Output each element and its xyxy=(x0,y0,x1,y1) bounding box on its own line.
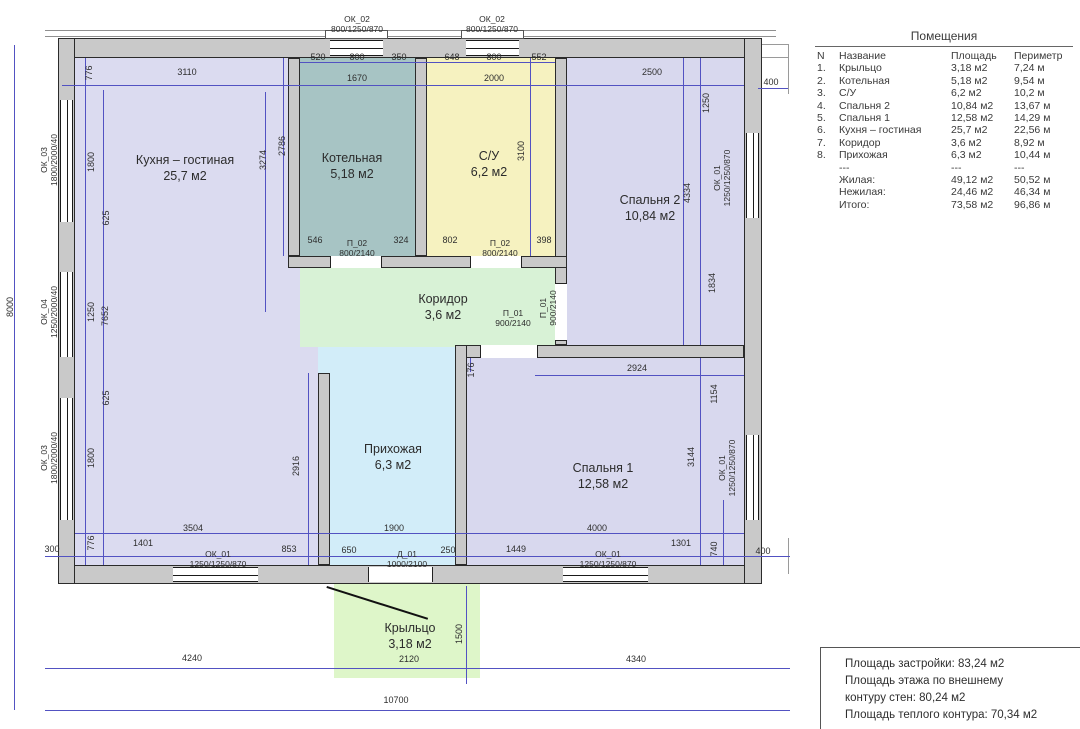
room-label: С/У6,2 м2 xyxy=(471,148,507,180)
opening-label: ОК_011250/1250/870 xyxy=(717,440,737,497)
table-cell: Крыльцо xyxy=(839,62,882,74)
table-row: Итого:73,58 м296,86 м xyxy=(815,199,1073,211)
table-row: 8.Прихожая6,3 м210,44 м xyxy=(815,149,1073,161)
opening-size: 1250/1250/870 xyxy=(722,150,732,207)
table-cell: 6,2 м2 xyxy=(951,87,982,99)
opening-name: П_01 xyxy=(538,290,548,325)
table-row: 7.Коридор3,6 м28,92 м xyxy=(815,137,1073,149)
table-cell: 4. xyxy=(817,100,826,112)
table-cell: 3,6 м2 xyxy=(951,137,982,149)
dimension-label: 1500 xyxy=(454,624,464,644)
table-cell: --- xyxy=(1014,162,1025,174)
dimension-label: 648 xyxy=(444,52,459,62)
dimension-label: 1250 xyxy=(86,302,96,322)
table-cell: 6,3 м2 xyxy=(951,149,982,161)
dimension-label: 2500 xyxy=(642,67,662,77)
dimension-label: 3110 xyxy=(177,67,196,77)
dimension-label: 400 xyxy=(763,77,778,87)
dim-line xyxy=(103,90,104,565)
dimension-label: 546 xyxy=(307,235,322,245)
dimension-label: 176 xyxy=(466,362,476,377)
table-cell: Спальня 2 xyxy=(839,100,890,112)
rooms-table-body: 1.Крыльцо3,18 м27,24 м2.Котельная5,18 м2… xyxy=(815,62,1073,211)
dimension-label: 1800 xyxy=(86,448,96,468)
opening-name: ОК_03 xyxy=(39,134,49,186)
table-cell: 7. xyxy=(817,137,826,149)
table-cell: 5. xyxy=(817,112,826,124)
dimension-label: 1449 xyxy=(506,544,526,554)
room-label: Кухня – гостиная25,7 м2 xyxy=(136,152,234,184)
table-cell: Прихожая xyxy=(839,149,888,161)
dimension-label: 2786 xyxy=(277,136,287,156)
opening-size: 1000/2100 xyxy=(387,559,427,569)
table-cell: 1. xyxy=(817,62,826,74)
window-bottom-1 xyxy=(173,567,258,582)
room-name: Спальня 2 xyxy=(620,192,681,208)
table-cell: 10,2 м xyxy=(1014,87,1045,99)
opening-name: ОК_02 xyxy=(331,14,383,24)
dim-line xyxy=(265,92,266,312)
summary-line: Площадь застройки: 83,24 м2 xyxy=(845,656,1080,673)
table-cell: 3,18 м2 xyxy=(951,62,987,74)
room-label: Котельная5,18 м2 xyxy=(322,150,383,182)
dim-line xyxy=(75,533,744,534)
room-area: 10,84 м2 xyxy=(620,208,681,224)
opening-label: ОК_02800/1250/870 xyxy=(466,14,518,34)
opening-name: ОК_03 xyxy=(39,432,49,484)
dimension-label: 3100 xyxy=(516,141,526,161)
table-cell: --- xyxy=(951,162,962,174)
opening-name: П_01 xyxy=(495,308,530,318)
room-name: Прихожая xyxy=(364,441,422,457)
dimension-label: 4240 xyxy=(182,653,202,663)
dimension-label: 3274 xyxy=(258,150,268,170)
room-label: Коридор3,6 м2 xyxy=(418,291,467,323)
table-cell: 10,44 м xyxy=(1014,149,1050,161)
window-left-3 xyxy=(60,398,73,520)
table-cell: --- xyxy=(839,162,850,174)
window-bottom-2 xyxy=(563,567,648,582)
entry-door-opening xyxy=(368,567,433,582)
table-cell: 7,24 м xyxy=(1014,62,1045,74)
dimension-label: 1800 xyxy=(86,152,96,172)
summary-line: Площадь этажа по внешнему xyxy=(845,673,1080,690)
opening-name: ОК_01 xyxy=(580,549,637,559)
opening-size: 1250/1250/870 xyxy=(190,559,247,569)
opening-label: П_02800/2140 xyxy=(339,238,374,258)
table-cell: 96,86 м xyxy=(1014,199,1050,211)
opening-size: 900/2140 xyxy=(548,290,558,325)
eaves-trim-top xyxy=(45,30,776,37)
opening-size: 1250/2000/40 xyxy=(49,286,59,338)
floor-plan-sheet: Помещения N Название Площадь Периметр 1.… xyxy=(0,0,1080,729)
dimension-label: 324 xyxy=(393,235,408,245)
table-cell: 2. xyxy=(817,75,826,87)
room-area: 6,3 м2 xyxy=(364,457,422,473)
opening-size: 800/2140 xyxy=(482,248,517,258)
room-name: Котельная xyxy=(322,150,383,166)
table-cell: 8,92 м xyxy=(1014,137,1045,149)
dimension-label: 3144 xyxy=(686,447,696,467)
opening-size: 800/2140 xyxy=(339,248,374,258)
table-row: Нежилая:24,46 м246,34 м xyxy=(815,186,1073,198)
dim-line xyxy=(45,710,790,711)
room-name: С/У xyxy=(471,148,507,164)
opening-name: ОК_01 xyxy=(190,549,247,559)
dim-line xyxy=(308,373,309,565)
dim-line xyxy=(530,58,531,256)
eaves-line-right-2 xyxy=(762,57,789,58)
door-opening-bedroom1 xyxy=(480,345,538,358)
opening-size: 800/1250/870 xyxy=(466,24,518,34)
dimension-label: 300 xyxy=(44,544,59,554)
wall-kitchen-hallway xyxy=(318,373,330,565)
dim-line xyxy=(466,586,467,684)
table-row: --------- xyxy=(815,162,1073,174)
opening-label: ОК_011250/1250/870 xyxy=(190,549,247,569)
room-area: 6,2 м2 xyxy=(471,164,507,180)
wall-hallway-bedroom1 xyxy=(455,345,467,565)
table-cell: 5,18 м2 xyxy=(951,75,987,87)
opening-size: 900/2140 xyxy=(495,318,530,328)
opening-name: Д_01 xyxy=(387,549,427,559)
table-cell: 50,52 м xyxy=(1014,174,1050,186)
table-cell: 25,7 м2 xyxy=(951,124,987,136)
dim-line xyxy=(283,58,284,256)
eaves-line-right-1 xyxy=(762,44,789,45)
table-cell: 73,58 м2 xyxy=(951,199,993,211)
summary-box: Площадь застройки: 83,24 м2Площадь этажа… xyxy=(820,647,1080,729)
dimension-label: 650 xyxy=(341,545,356,555)
dimension-label: 740 xyxy=(709,541,719,556)
opening-size: 800/1250/870 xyxy=(331,24,383,34)
table-row: Жилая:49,12 м250,52 м xyxy=(815,174,1073,186)
room-label: Спальня 210,84 м2 xyxy=(620,192,681,224)
dimension-label: 552 xyxy=(531,52,546,62)
dim-line xyxy=(723,500,724,565)
opening-label: Д_011000/2100 xyxy=(387,549,427,569)
header-perimeter: Периметр xyxy=(1014,50,1062,62)
room-name: Спальня 1 xyxy=(573,460,634,476)
table-cell: 10,84 м2 xyxy=(951,100,993,112)
dim-line xyxy=(14,45,15,710)
dim-line xyxy=(45,668,790,669)
opening-size: 1800/2000/40 xyxy=(49,432,59,484)
room-area: 12,58 м2 xyxy=(573,476,634,492)
dimension-label: 3504 xyxy=(183,523,203,533)
window-right-1 xyxy=(746,133,759,218)
room-area: 3,18 м2 xyxy=(385,636,436,652)
room-area: 3,6 м2 xyxy=(418,307,467,323)
opening-label: ОК_011250/1250/870 xyxy=(580,549,637,569)
dimension-label: 802 xyxy=(442,235,457,245)
summary-line: контуру стен: 80,24 м2 xyxy=(845,690,1080,707)
dimension-label: 350 xyxy=(391,52,406,62)
window-left-1 xyxy=(60,100,73,222)
table-row: 4.Спальня 210,84 м213,67 м xyxy=(815,100,1073,112)
dimension-label: 2916 xyxy=(291,456,301,476)
dim-line xyxy=(700,358,701,565)
opening-label: ОК_031800/2000/40 xyxy=(39,134,59,186)
opening-label: ОК_02800/1250/870 xyxy=(331,14,383,34)
summary-line: Площадь теплого контура: 70,34 м2 xyxy=(845,707,1080,724)
opening-size: 1800/2000/40 xyxy=(49,134,59,186)
wall-kitchen-boiler xyxy=(288,58,300,256)
opening-name: ОК_01 xyxy=(712,150,722,207)
room-name: Коридор xyxy=(418,291,467,307)
wall-boiler-bathroom xyxy=(415,58,427,256)
dim-line xyxy=(535,375,744,376)
opening-size: 1250/1250/870 xyxy=(727,440,737,497)
dimension-label: 776 xyxy=(86,535,96,550)
dimension-label: 1250 xyxy=(701,93,711,113)
opening-label: ОК_011250/1250/870 xyxy=(712,150,732,207)
dimension-label: 776 xyxy=(84,65,94,80)
dimension-label: 800 xyxy=(349,52,364,62)
dimension-label: 2120 xyxy=(399,654,419,664)
dimension-label: 1154 xyxy=(709,384,719,403)
dimension-label: 4000 xyxy=(587,523,607,533)
dimension-label: 10700 xyxy=(383,695,408,705)
opening-name: ОК_01 xyxy=(717,440,727,497)
dim-line xyxy=(62,85,744,86)
table-cell: 13,67 м xyxy=(1014,100,1050,112)
header-area: Площадь xyxy=(951,50,997,62)
opening-label: П_02800/2140 xyxy=(482,238,517,258)
table-row: 1.Крыльцо3,18 м27,24 м xyxy=(815,62,1073,74)
dimension-label: 1401 xyxy=(133,538,153,548)
table-cell: 49,12 м2 xyxy=(951,174,993,186)
dimension-label: 520 xyxy=(310,52,325,62)
room-label: Спальня 112,58 м2 xyxy=(573,460,634,492)
room-fill-kitchen xyxy=(75,58,318,565)
table-cell: 46,34 м xyxy=(1014,186,1050,198)
header-n: N xyxy=(817,50,825,62)
dimension-label: 800 xyxy=(486,52,501,62)
dimension-label: 1834 xyxy=(707,273,717,293)
window-left-2 xyxy=(60,272,73,357)
dimension-label: 7652 xyxy=(100,306,110,326)
dimension-label: 4340 xyxy=(626,654,646,664)
dimension-label: 2000 xyxy=(484,73,504,83)
dimension-label: 1900 xyxy=(384,523,404,533)
dimension-label: 625 xyxy=(101,210,111,225)
table-cell: С/У xyxy=(839,87,856,99)
table-cell: Коридор xyxy=(839,137,880,149)
table-cell: 8. xyxy=(817,149,826,161)
table-cell: Котельная xyxy=(839,75,890,87)
opening-label: П_01900/2140 xyxy=(538,290,558,325)
table-cell: Спальня 1 xyxy=(839,112,890,124)
dimension-label: 398 xyxy=(536,235,551,245)
dim-line xyxy=(300,62,555,63)
table-cell: 22,56 м xyxy=(1014,124,1050,136)
opening-label: ОК_041250/2000/40 xyxy=(39,286,59,338)
room-name: Крыльцо xyxy=(385,620,436,636)
table-cell: Итого: xyxy=(839,199,869,211)
table-cell: Нежилая: xyxy=(839,186,886,198)
dimension-label: 853 xyxy=(281,544,296,554)
dimension-label: 8000 xyxy=(5,297,15,317)
opening-label: ОК_031800/2000/40 xyxy=(39,432,59,484)
table-row: 3.С/У6,2 м210,2 м xyxy=(815,87,1073,99)
rooms-table-title: Помещения xyxy=(815,28,1073,45)
opening-name: П_02 xyxy=(482,238,517,248)
dimension-label: 250 xyxy=(440,545,455,555)
dim-line xyxy=(758,88,788,89)
window-right-2 xyxy=(746,435,759,520)
eaves-line-right-3 xyxy=(788,44,789,94)
table-cell: 24,46 м2 xyxy=(951,186,993,198)
opening-name: ОК_04 xyxy=(39,286,49,338)
header-name: Название xyxy=(839,50,886,62)
wall-top xyxy=(58,38,762,58)
table-cell: Жилая: xyxy=(839,174,875,186)
table-row: 5.Спальня 112,58 м214,29 м xyxy=(815,112,1073,124)
room-area: 5,18 м2 xyxy=(322,166,383,182)
room-label: Прихожая6,3 м2 xyxy=(364,441,422,473)
opening-name: ОК_02 xyxy=(466,14,518,24)
table-cell: 14,29 м xyxy=(1014,112,1050,124)
table-cell: 6. xyxy=(817,124,826,136)
opening-name: П_02 xyxy=(339,238,374,248)
table-row: 6.Кухня – гостиная25,7 м222,56 м xyxy=(815,124,1073,136)
dimension-label: 2924 xyxy=(627,363,647,373)
opening-size: 1250/1250/870 xyxy=(580,559,637,569)
table-cell: 9,54 м xyxy=(1014,75,1045,87)
table-cell: 3. xyxy=(817,87,826,99)
dimension-label: 4334 xyxy=(682,183,692,203)
room-area: 25,7 м2 xyxy=(136,168,234,184)
table-cell: 12,58 м2 xyxy=(951,112,993,124)
room-label: Крыльцо3,18 м2 xyxy=(385,620,436,652)
table-row: 2.Котельная5,18 м29,54 м xyxy=(815,75,1073,87)
dimension-label: 400 xyxy=(755,546,770,556)
rooms-table-rule xyxy=(815,46,1073,47)
rooms-table-header: N Название Площадь Периметр xyxy=(815,50,1073,62)
room-name: Кухня – гостиная xyxy=(136,152,234,168)
dimension-label: 1301 xyxy=(671,538,691,548)
dimension-label: 625 xyxy=(101,390,111,405)
rooms-table: Помещения N Название Площадь Периметр 1.… xyxy=(815,28,1073,211)
table-cell: Кухня – гостиная xyxy=(839,124,921,136)
opening-label: П_01900/2140 xyxy=(495,308,530,328)
dimension-label: 1670 xyxy=(347,73,367,83)
